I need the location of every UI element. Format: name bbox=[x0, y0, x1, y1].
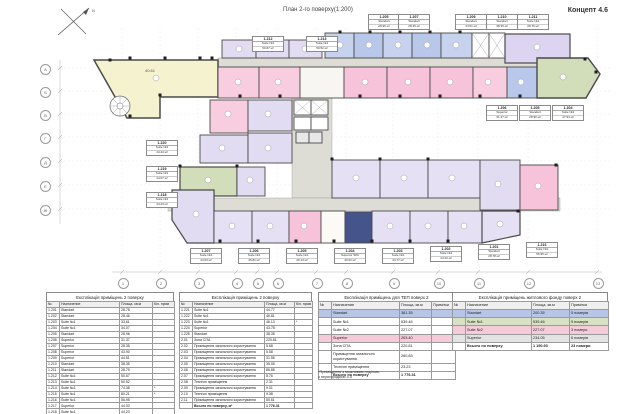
room-tag bbox=[453, 42, 459, 48]
room-callout: 1.207Suite №144.03 м² bbox=[190, 248, 222, 264]
room-tag bbox=[560, 74, 566, 80]
room-tag bbox=[265, 111, 271, 117]
grid-bubble: 5 bbox=[253, 278, 264, 289]
room-tag bbox=[225, 111, 231, 117]
table-row: №НазначениеПлоща, кв.мПримітка bbox=[453, 302, 609, 310]
north-label: N bbox=[92, 8, 95, 13]
table-cell: 539.46 bbox=[532, 318, 570, 326]
room-callout: 1.204Suite №247.94 м² bbox=[552, 105, 584, 121]
room-tag bbox=[461, 223, 467, 229]
grid-bubble: 2 bbox=[156, 278, 167, 289]
table-cell bbox=[319, 342, 332, 350]
column-marker bbox=[109, 59, 112, 62]
drawing-sheet: План 2-го поверху(1:200) Концепт 4.6 N40… bbox=[0, 0, 620, 414]
table-cell bbox=[295, 403, 313, 409]
grid-bubble: 4 bbox=[232, 278, 243, 289]
column-marker bbox=[236, 165, 239, 168]
grid-bubble: Е bbox=[40, 181, 51, 192]
column-marker bbox=[399, 95, 402, 98]
room-callout: 1.204Superior SPA40.02 м² bbox=[334, 248, 366, 264]
table-cell bbox=[453, 318, 466, 326]
table-cell bbox=[319, 326, 332, 334]
table-cell: 227.07 bbox=[400, 326, 432, 334]
room-tag bbox=[449, 175, 455, 181]
table-cell: Suite №2 bbox=[466, 326, 532, 334]
callout-area: 40.02 м² bbox=[335, 258, 365, 263]
callout-area: 28.96 м² bbox=[520, 115, 550, 120]
column-header: Кіл. прим bbox=[295, 302, 313, 308]
table-cell: Приміщення загального користування bbox=[193, 349, 265, 355]
grid-bubble: Г bbox=[40, 133, 51, 144]
grid-bubble: В bbox=[40, 110, 51, 121]
table-cell: 5 номерів bbox=[570, 310, 609, 318]
callout-area: 44.23 м² bbox=[431, 256, 461, 261]
table-cell: 1 190.93 bbox=[532, 342, 570, 350]
callout-area: 44.07 м² bbox=[147, 176, 177, 181]
grid-bubble: 8 bbox=[342, 278, 353, 289]
room-tag bbox=[193, 211, 199, 217]
room bbox=[321, 211, 345, 243]
column-header: Площа, кв.м bbox=[532, 302, 570, 310]
room-callout: 1.216Suite №156.95 м² bbox=[526, 242, 558, 258]
table-cell: 263.40 bbox=[400, 334, 432, 342]
column-marker bbox=[257, 240, 260, 243]
column-marker bbox=[427, 158, 430, 161]
callout-area: 44.77 м² bbox=[383, 258, 413, 263]
table-cell: 44.23 bbox=[120, 409, 153, 414]
table-cell: Приміщення загального користування bbox=[193, 373, 265, 379]
table-cell: 3 номери bbox=[570, 326, 609, 334]
room-callout: 1.207Standart28.35 м² bbox=[398, 14, 430, 30]
callout-area: 50.52 м² bbox=[307, 46, 337, 51]
column-header: Площа, кв.м bbox=[400, 302, 432, 310]
table-cell: Приміщення загального користування bbox=[193, 343, 265, 349]
room-callout: 1.213Suite №150.52 м² bbox=[306, 36, 338, 52]
table-cell bbox=[453, 310, 466, 318]
table-cell: Приміщення загального користування bbox=[193, 361, 265, 367]
grid-bubble: 13 bbox=[593, 278, 604, 289]
column-header: Назначение bbox=[332, 302, 400, 310]
room-tag bbox=[366, 42, 372, 48]
north-arrow-icon bbox=[61, 9, 86, 34]
hall-area-label: 40.61 bbox=[145, 68, 156, 73]
table-cell: Standart bbox=[466, 310, 532, 318]
table-cell: Приміщення загального користування bbox=[193, 385, 265, 391]
table-cell: Suite №1 bbox=[466, 318, 532, 326]
explication-table-4: Експлікація приміщень житлового фонду по… bbox=[452, 292, 608, 351]
room-tag bbox=[153, 75, 159, 81]
column-marker bbox=[595, 71, 598, 74]
column-marker bbox=[179, 165, 182, 168]
column-marker bbox=[379, 158, 382, 161]
table-row: Suite №2227.073 номери bbox=[453, 326, 609, 334]
column-marker bbox=[479, 95, 482, 98]
table-cell bbox=[319, 310, 332, 318]
table-cell bbox=[319, 350, 332, 363]
callout-area: 50.67 м² bbox=[253, 46, 283, 51]
column-marker bbox=[555, 164, 558, 167]
column-marker bbox=[211, 57, 214, 60]
room-tag bbox=[395, 42, 401, 48]
room-tag bbox=[235, 79, 241, 85]
room-callout: 1.205Standart28.96 м² bbox=[368, 14, 400, 30]
table-cell: Зона СПА bbox=[332, 342, 400, 350]
table-title: Експлікація приміщень 2 поверху bbox=[46, 292, 174, 301]
column-marker bbox=[369, 31, 372, 34]
table-cell: Superior bbox=[332, 334, 400, 342]
table-row: Standart381.35 bbox=[319, 310, 456, 318]
room-tag bbox=[219, 145, 225, 151]
callout-area: 28.96 м² bbox=[369, 24, 399, 29]
table-footnote: *Приміщення з можливим поділом, з перего… bbox=[318, 370, 380, 380]
grid-bubble: 9 bbox=[389, 278, 400, 289]
column-marker bbox=[447, 240, 450, 243]
column-marker bbox=[517, 210, 520, 213]
table-cell: 227.07 bbox=[532, 326, 570, 334]
table-cell bbox=[432, 363, 456, 371]
callout-area: 44.03 м² bbox=[191, 258, 221, 263]
table-cell: Приміщення загального користування bbox=[193, 355, 265, 361]
room-tag bbox=[247, 177, 253, 183]
column-marker bbox=[279, 95, 282, 98]
room-tag bbox=[495, 181, 501, 187]
table-cell: Всього по поверху, м² bbox=[193, 403, 265, 409]
room-tag bbox=[401, 175, 407, 181]
table-title: Експлікація приміщень 2 поверху bbox=[179, 292, 312, 301]
table-cell: Superior bbox=[466, 334, 532, 342]
room bbox=[300, 67, 344, 98]
table-cell bbox=[319, 334, 332, 342]
room-tag bbox=[405, 79, 411, 85]
column-marker bbox=[339, 31, 342, 34]
column-marker bbox=[295, 240, 298, 243]
column-marker bbox=[459, 31, 462, 34]
north-arrow-head bbox=[83, 8, 89, 15]
explication-table-1: Експлікація приміщень 2 поверху№Назначен… bbox=[46, 292, 174, 414]
room bbox=[309, 132, 322, 143]
grid-bubble: 1 bbox=[118, 278, 129, 289]
table-row: 1.218Suite №144.23 bbox=[47, 409, 175, 414]
callout-area: 47.94 м² bbox=[553, 115, 583, 120]
corridor bbox=[218, 58, 540, 67]
table-cell bbox=[432, 350, 456, 363]
explication-table-2: Експлікація приміщень 2 поверху№Назначен… bbox=[179, 292, 312, 409]
room-tag bbox=[535, 183, 541, 189]
column-marker bbox=[219, 240, 222, 243]
table-cell: Приміщення загального користування bbox=[332, 350, 400, 363]
table-cell: Приміщення загального користування bbox=[193, 397, 265, 403]
column-marker bbox=[164, 57, 167, 60]
table-cell: 1 776.31 bbox=[265, 403, 295, 409]
table-cell bbox=[453, 334, 466, 342]
column-marker bbox=[584, 58, 587, 61]
callout-area: 38.35 м² bbox=[487, 24, 517, 29]
table-cell bbox=[153, 409, 175, 414]
column-marker bbox=[129, 57, 132, 60]
room-tag bbox=[518, 79, 524, 85]
table-row: Superior263.40 bbox=[319, 334, 456, 342]
grid-bubble: Б bbox=[40, 87, 51, 98]
table-row: Suite №1539.469 номерів bbox=[453, 318, 609, 326]
room-tag bbox=[267, 223, 273, 229]
room bbox=[311, 117, 328, 130]
column-marker bbox=[199, 57, 202, 60]
callout-area: 28.79 м² bbox=[518, 24, 548, 29]
room-tag bbox=[534, 44, 540, 50]
room bbox=[294, 117, 311, 130]
table-cell: 6 номерів bbox=[570, 334, 609, 342]
grid-bubble: А bbox=[40, 64, 51, 75]
table-row: Приміщення загального користування260.83 bbox=[319, 350, 456, 363]
callout-area: 44.44 м² bbox=[147, 150, 177, 155]
column-marker bbox=[239, 95, 242, 98]
column-header: № bbox=[319, 302, 332, 310]
table-row: Suite №2227.07 bbox=[319, 326, 456, 334]
table-cell: Всього по поверху bbox=[466, 342, 532, 350]
room-tag bbox=[275, 79, 281, 85]
column-marker bbox=[359, 95, 362, 98]
room-tag bbox=[205, 177, 211, 183]
callout-area: 46.81 м² bbox=[239, 258, 269, 263]
table-title: Експлікація приміщень житлового фонду по… bbox=[452, 292, 608, 301]
table-row: Всього по поверху1 190.9323 номери bbox=[453, 342, 609, 350]
room-callout: 1.206Superior31.37 м² bbox=[486, 105, 518, 121]
room-callout: 1.220Suite №144.44 м² bbox=[146, 140, 178, 156]
callout-area: 44.51 м² bbox=[456, 24, 486, 29]
grid-bubble: 6 bbox=[273, 278, 284, 289]
grid-bubble: 12 bbox=[524, 278, 535, 289]
column-header: № bbox=[453, 302, 466, 310]
table-row: Зона СПА220.81 bbox=[319, 342, 456, 350]
room-callout: 1.202Suite №144.23 м² bbox=[430, 246, 462, 262]
table-cell: Standart bbox=[332, 310, 400, 318]
explication-table-3: Експлікація приміщень для ТЕП поверх 2№Н… bbox=[318, 292, 455, 380]
table-cell: 381.35 bbox=[400, 310, 432, 318]
room bbox=[172, 190, 214, 243]
room-callout: 1.201Standart28.78 м² bbox=[478, 244, 510, 260]
column-marker bbox=[399, 31, 402, 34]
table-row: Suite №1539.46 bbox=[319, 318, 456, 326]
table-cell: 200.35 bbox=[532, 310, 570, 318]
room-tag bbox=[424, 42, 430, 48]
room-tag bbox=[301, 223, 307, 229]
room bbox=[345, 212, 372, 243]
callout-area: 31.37 м² bbox=[487, 115, 517, 120]
column-marker bbox=[429, 31, 432, 34]
callout-area: 28.35 м² bbox=[399, 24, 429, 29]
room-callout: 1.211Suite №128.79 м² bbox=[517, 14, 549, 30]
table-cell: 234.05 bbox=[532, 334, 570, 342]
room-callout: 1.203Suite №144.77 м² bbox=[382, 248, 414, 264]
room-tag bbox=[229, 223, 235, 229]
column-marker bbox=[519, 95, 522, 98]
column-marker bbox=[331, 158, 334, 161]
room-tag bbox=[387, 223, 393, 229]
grid-bubble: 3 bbox=[194, 278, 205, 289]
table-cell: 1 776.31 bbox=[400, 371, 432, 379]
table-cell: Suite №1 bbox=[60, 409, 120, 414]
room-callout: 1.210Standart38.35 м² bbox=[486, 14, 518, 30]
table-title: Експлікація приміщень для ТЕП поверх 2 bbox=[318, 292, 455, 301]
room-tag bbox=[497, 221, 503, 227]
column-marker bbox=[129, 115, 132, 118]
room-tag bbox=[447, 79, 453, 85]
room-callout: 1.212Suite №150.67 м² bbox=[252, 36, 284, 52]
column-marker bbox=[409, 240, 412, 243]
table-cell: Suite №1 bbox=[332, 318, 400, 326]
callout-area: 56.95 м² bbox=[527, 252, 557, 257]
table-cell: 1.218 bbox=[47, 409, 60, 414]
room-tag bbox=[236, 46, 242, 52]
spiral-stair-icon bbox=[117, 103, 123, 109]
grid-bubble: Ж bbox=[40, 205, 51, 216]
grid-bubble: Д bbox=[40, 157, 51, 168]
table-cell bbox=[180, 403, 193, 409]
table-cell: 9 номерів bbox=[570, 318, 609, 326]
column-header: Примітка bbox=[570, 302, 609, 310]
table-cell: 23.23 bbox=[400, 363, 432, 371]
room-callout: 1.206Suite №146.81 м² bbox=[238, 248, 270, 264]
table-cell: Приміщення загального користування bbox=[193, 367, 265, 373]
room-tag bbox=[425, 223, 431, 229]
column-marker bbox=[159, 94, 162, 97]
table-cell bbox=[453, 342, 466, 350]
callout-area: 28.78 м² bbox=[479, 254, 509, 259]
table-cell bbox=[453, 326, 466, 334]
grid-bubble: 10 bbox=[434, 278, 445, 289]
room-tag bbox=[485, 79, 491, 85]
room-callout: 1.219Suite №144.07 м² bbox=[146, 166, 178, 182]
room-green bbox=[537, 58, 600, 98]
grid-bubble: 11 bbox=[474, 278, 485, 289]
callout-area: 44.23 м² bbox=[147, 202, 177, 207]
table-row: Superior234.056 номерів bbox=[453, 334, 609, 342]
column-marker bbox=[371, 240, 374, 243]
room-tag bbox=[353, 175, 359, 181]
column-header: Назначение bbox=[466, 302, 532, 310]
table-cell: 539.46 bbox=[400, 318, 432, 326]
table-row: Всього по поверху, м²1 776.31 bbox=[180, 403, 313, 409]
table-row: Standart200.355 номерів bbox=[453, 310, 609, 318]
room-tag bbox=[362, 79, 368, 85]
column-marker bbox=[439, 95, 442, 98]
room-callout: 1.205Standart28.96 м² bbox=[519, 105, 551, 121]
grid-bubble: 7 bbox=[312, 278, 323, 289]
callout-area: 46.13 м² bbox=[287, 258, 317, 263]
room-tag bbox=[265, 145, 271, 151]
room-callout: 1.209Standart44.51 м² bbox=[455, 14, 487, 30]
table-cell bbox=[319, 318, 332, 326]
column-marker bbox=[333, 240, 336, 243]
table-cell: 23 номери bbox=[570, 342, 609, 350]
table-row: №НазначениеПлоща, кв.мПримітки bbox=[319, 302, 456, 310]
table-cell: 220.81 bbox=[400, 342, 432, 350]
room bbox=[296, 132, 309, 143]
table-cell: Suite №2 bbox=[332, 326, 400, 334]
room-callout: 1.218Suite №144.23 м² bbox=[146, 192, 178, 208]
table-cell: 260.83 bbox=[400, 350, 432, 363]
table-cell bbox=[432, 371, 456, 379]
room-callout: 1.205Suite №146.13 м² bbox=[286, 248, 318, 264]
